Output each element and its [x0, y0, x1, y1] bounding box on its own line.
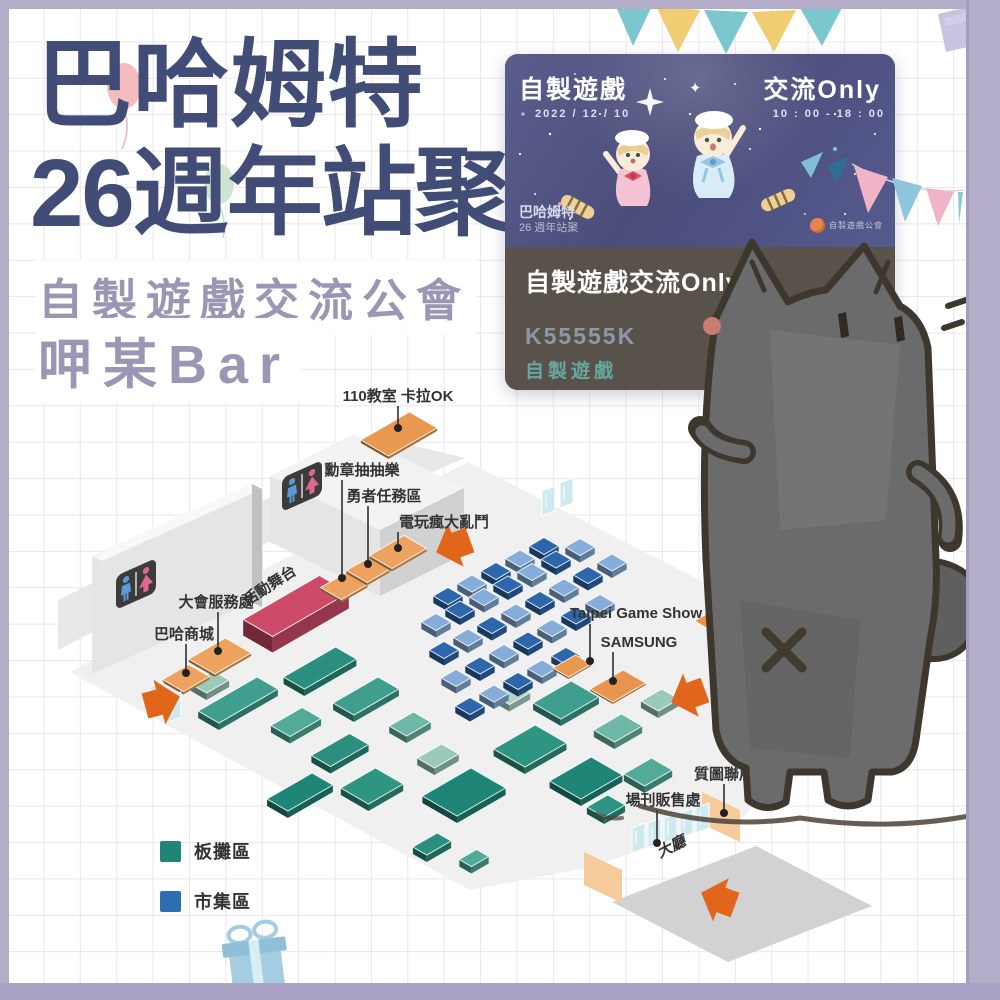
entrance-door: [680, 808, 693, 838]
lobby-outdoor-floor: [612, 846, 872, 962]
label-dot: [394, 544, 402, 552]
poster-title-right: 交流Only: [763, 70, 881, 106]
label-dot: [214, 647, 222, 655]
label-dot: [586, 657, 594, 665]
label-tgs: Taipei Game Show: [570, 605, 703, 622]
poster-title-left: 自製遊戲: [519, 70, 627, 106]
entrance-door: [560, 478, 573, 508]
legend-swatch-board: [160, 841, 181, 862]
label-game-battle: 電玩瘋大亂鬥: [399, 513, 489, 531]
label-dot: [758, 596, 766, 604]
page-title-line2: 26週年站聚: [30, 146, 509, 242]
legend-label-board: 板攤區: [194, 838, 251, 864]
card-booth-code: K55555K: [525, 323, 875, 350]
label-dot: [609, 677, 617, 685]
legend-swatch-market: [160, 891, 181, 912]
label-hero-quest: 勇者任務區: [346, 487, 421, 505]
label-dot: [364, 560, 372, 568]
entrance-door: [632, 823, 645, 853]
card-info-section: 自製遊戲交流Only K55555K 自製遊戲: [505, 247, 895, 390]
entrance-door: [560, 478, 573, 508]
poster-image: 自製遊戲 ✦ 交流Only 2022 / 12 / 10 10 : 00 - 1…: [505, 54, 895, 247]
entrance-door: [542, 486, 555, 516]
legend-row-board: 板攤區: [160, 838, 251, 864]
label-badge-draw: 勳章抽抽樂: [324, 461, 400, 479]
poster-time: 10 : 00 - 18 : 00: [773, 108, 885, 120]
event-map-poster: { "header": { "title_line1": "巴哈姆特", "ti…: [0, 0, 1000, 1000]
frame-border-top: [0, 0, 1000, 9]
label-dot: [338, 574, 346, 582]
label-dot: [182, 669, 190, 677]
legend-row-market: 市集區: [160, 888, 251, 914]
label-outdoor-car: 戶外痛車展示區: [707, 545, 812, 563]
label-karaoke: 110教室 卡拉OK: [343, 387, 454, 405]
event-card[interactable]: 自製遊戲 ✦ 交流Only 2022 / 12 / 10 10 : 00 - 1…: [505, 54, 895, 390]
label-samsung: SAMSUNG: [601, 634, 678, 651]
poster-date: 2022 / 12 / 10: [535, 108, 630, 120]
frame-border-left: [0, 0, 9, 1000]
entrance-door: [786, 642, 799, 672]
page-title-line1: 巴哈姆特: [36, 38, 424, 134]
entrance-door: [786, 642, 799, 672]
guild-logo-icon: [810, 218, 825, 233]
entrance-door: [632, 823, 645, 853]
card-booth-title: 自製遊戲交流Only: [525, 263, 875, 299]
entrance-door: [542, 486, 555, 516]
guild-logo-text: 自製遊戲公會: [829, 220, 883, 231]
poster-brand-line1: 巴哈姆特: [519, 203, 578, 221]
poster-brand-line2: 26 週年站聚: [519, 221, 578, 235]
star-icon: ✦: [689, 79, 702, 97]
card-booth-category: 自製遊戲: [525, 356, 875, 383]
frame-border-right: [966, 0, 1000, 1000]
legend-label-market: 市集區: [194, 888, 251, 914]
label-program-sales: 場刊販售處: [625, 791, 701, 809]
label-dot: [394, 424, 402, 432]
label-art-expo: 質圖聯展: [694, 765, 754, 783]
label-mall: 巴哈商城: [154, 625, 214, 643]
label-dot: [720, 809, 728, 817]
booth-name-title: 呷某Bar: [36, 318, 301, 403]
entrance-door: [680, 808, 693, 838]
frame-border-bottom: [0, 983, 1000, 1000]
guild-logo: 自製遊戲公會: [810, 218, 883, 233]
map-legend: 板攤區 市集區: [160, 838, 251, 914]
